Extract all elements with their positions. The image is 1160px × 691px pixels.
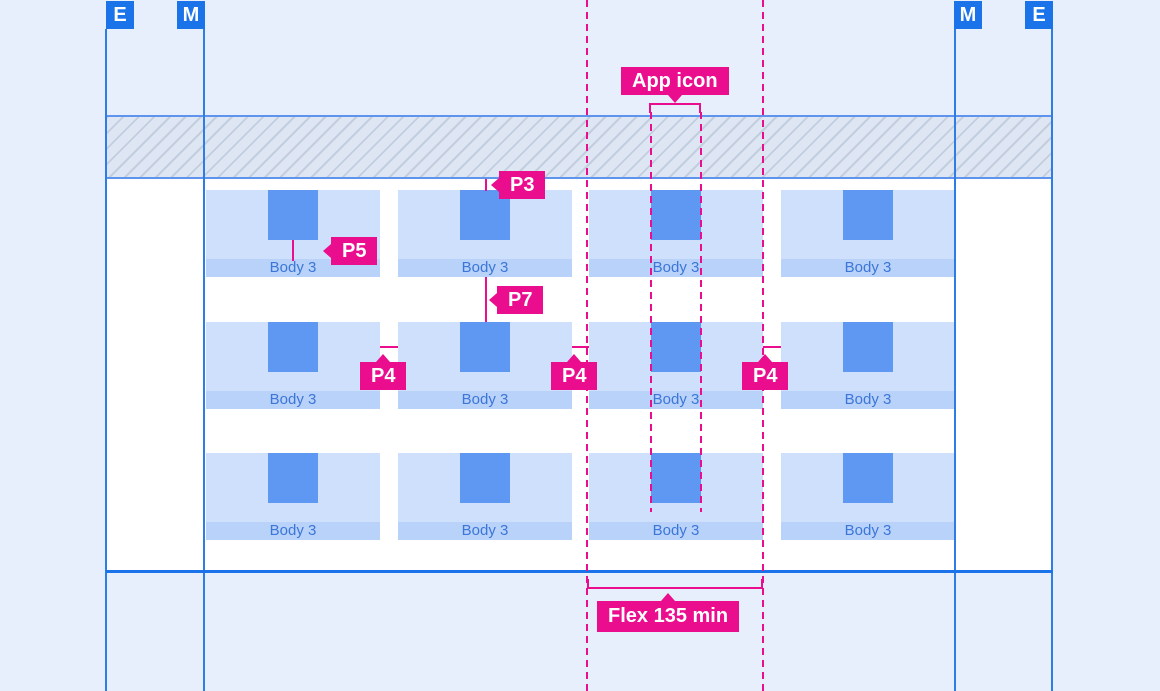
app-icon-square: [460, 453, 510, 503]
card-caption: Body 3: [653, 259, 700, 277]
p4-label-middle: P4: [551, 362, 597, 390]
app-icon-square: [268, 453, 318, 503]
app-icon-square: [268, 322, 318, 372]
app-card: Body 3: [781, 322, 955, 409]
card-caption-strip: Body 3: [398, 259, 572, 277]
card-caption: Body 3: [845, 522, 892, 540]
app-icon-square: [843, 190, 893, 240]
p5-measure-tick: [292, 240, 294, 261]
app-icon-square: [651, 453, 701, 503]
card-caption-strip: Body 3: [781, 391, 955, 409]
app-card: Body 3: [589, 453, 763, 540]
p4-label-right: P4: [742, 362, 788, 390]
p4-gap-line-left: [380, 346, 398, 348]
app-card: Body 3: [781, 190, 955, 277]
card-caption: Body 3: [653, 522, 700, 540]
app-card: Body 3: [398, 453, 572, 540]
card-caption-strip: Body 3: [781, 259, 955, 277]
card-caption-strip: Body 3: [781, 522, 955, 540]
card-caption: Body 3: [270, 391, 317, 409]
app-card: Body 3: [398, 322, 572, 409]
app-card: Body 3: [589, 190, 763, 277]
app-icon-square: [843, 322, 893, 372]
card-caption: Body 3: [653, 391, 700, 409]
edge-badge-right: E: [1025, 1, 1053, 29]
app-card: Body 3: [589, 322, 763, 409]
app-card: Body 3: [781, 453, 955, 540]
app-icon-dashed-guide-right: [700, 112, 702, 512]
card-caption-strip: Body 3: [398, 391, 572, 409]
card-caption-strip: Body 3: [589, 522, 763, 540]
edge-badge-left: E: [106, 1, 134, 29]
app-icon-label: App icon: [621, 67, 729, 95]
card-caption: Body 3: [845, 391, 892, 409]
app-icon-square: [843, 453, 893, 503]
card-caption: Body 3: [270, 522, 317, 540]
card-caption: Body 3: [462, 391, 509, 409]
p3-label: P3: [499, 171, 545, 199]
p3-measure-tick: [485, 179, 487, 191]
guide-line-edge-right: [1051, 29, 1053, 691]
app-icon-width-bracket: [649, 103, 701, 113]
card-caption-strip: Body 3: [589, 259, 763, 277]
card-caption: Body 3: [845, 259, 892, 277]
app-icon-dashed-guide-left: [650, 112, 652, 512]
card-caption-strip: Body 3: [206, 391, 380, 409]
app-icon-square: [651, 190, 701, 240]
flex-min-label: Flex 135 min: [597, 601, 739, 632]
guide-line-edge-left: [105, 29, 107, 691]
card-caption: Body 3: [462, 522, 509, 540]
app-icon-square: [651, 322, 701, 372]
p7-measure-tick: [485, 277, 487, 322]
hatched-header-band: [106, 115, 1053, 179]
content-bottom-rule: [106, 570, 1053, 573]
card-caption: Body 3: [462, 259, 509, 277]
flex-width-bracket: [587, 579, 763, 589]
p5-label: P5: [331, 237, 377, 265]
p4-label-left: P4: [360, 362, 406, 390]
card-caption-strip: Body 3: [398, 522, 572, 540]
card-caption: Body 3: [270, 259, 317, 277]
margin-badge-right: M: [954, 1, 982, 29]
card-caption-strip: Body 3: [206, 522, 380, 540]
p4-gap-line-middle: [572, 346, 589, 348]
design-spec-canvas: E M M E Body 3 Body 3 Body 3 Body 3 Body…: [0, 0, 1160, 691]
app-card: Body 3: [398, 190, 572, 277]
app-icon-square: [460, 322, 510, 372]
guide-line-margin-left: [203, 29, 205, 691]
guide-line-margin-right: [954, 29, 956, 691]
app-card: Body 3: [206, 322, 380, 409]
margin-badge-left: M: [177, 1, 205, 29]
card-caption-strip: Body 3: [589, 391, 763, 409]
p7-label: P7: [497, 286, 543, 314]
app-card: Body 3: [206, 453, 380, 540]
app-icon-square: [268, 190, 318, 240]
p4-gap-line-right: [763, 346, 781, 348]
